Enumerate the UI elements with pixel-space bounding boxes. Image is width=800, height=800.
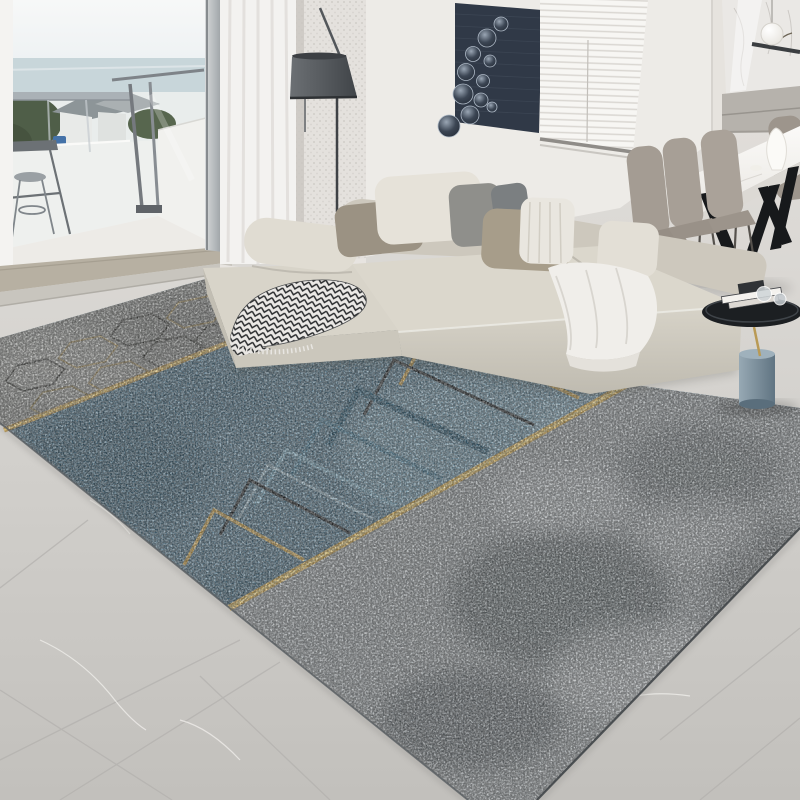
kitchen-area [722, 0, 800, 132]
glass-ball-1 [757, 287, 772, 302]
lamp-shade-top [292, 53, 346, 60]
small-dish [750, 165, 762, 171]
scene-canvas [0, 0, 800, 800]
cylinder-bottom [739, 399, 775, 409]
lamp-shade-rim [290, 97, 357, 98]
cylinder-base [739, 354, 775, 404]
railing-bar [0, 92, 130, 100]
cylinder-top [739, 349, 775, 359]
lamp-shade [290, 55, 357, 98]
pillow-striped [519, 197, 575, 265]
curtain-fold [296, 0, 304, 260]
pendant-lamp [761, 23, 783, 45]
glass-ball-2 [774, 293, 786, 305]
left-wall-sliver [0, 0, 13, 268]
living-room-photo [0, 0, 800, 800]
